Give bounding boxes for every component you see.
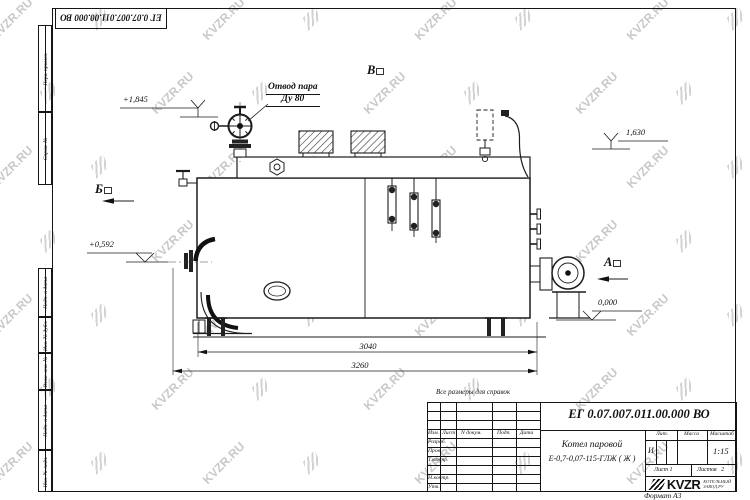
doc-number: ЕГ 0.07.007.011.00.000 ВО — [568, 408, 709, 421]
level-mark-0000: 0,000 — [598, 298, 617, 307]
brand-sub-line1: КОТЕЛЬНЫЙ — [703, 479, 731, 484]
level-mark-1630: 1,630 — [626, 128, 645, 137]
lit-value: И — [648, 447, 654, 455]
margin-label: Взам. инв. № — [44, 347, 50, 397]
scale-value: 1:15 — [713, 447, 729, 456]
tb-col-list: Лист — [442, 431, 455, 437]
kvzr-logo-icon — [648, 479, 666, 490]
lit-label: Лит. — [656, 432, 668, 438]
view-label-b: Б — [95, 183, 112, 196]
brand-sub-line2: ЗАВОД.РУ — [703, 484, 724, 489]
view-letter: А — [604, 255, 612, 269]
margin-label: Справ. № — [44, 124, 50, 174]
dim-3260: 3260 — [352, 361, 369, 370]
tb-col-izm: Изм. — [428, 431, 439, 437]
mass-label: Масса — [684, 432, 699, 438]
view-letter: Б — [95, 182, 103, 196]
tb-row-prov: Пров. — [428, 449, 441, 455]
drawing-sheet: KVZR.RUKVZR.RUKVZR.RUKVZR.RUKVZR.RUKVZR.… — [0, 0, 750, 500]
tb-row-nkontr: Н.контр. — [428, 476, 450, 482]
steam-outlet-callout: Отвод пара Ду 80 — [266, 83, 320, 107]
view-label-a: А — [604, 256, 621, 269]
reference-note: Все размеры для справок — [436, 389, 510, 396]
view-label-v: В — [367, 64, 384, 77]
tb-row-utv: Утв. — [428, 485, 440, 491]
format-label: Формат А3 — [644, 492, 681, 500]
tb-row-tkontr: Т.контр. — [428, 458, 448, 464]
view-letter: В — [367, 63, 375, 77]
sheet-number: Лист 1 — [654, 467, 673, 473]
company-cell: KVZR КОТЕЛЬНЫЙ ЗАВОД.РУ — [645, 476, 737, 492]
margin-label: Подп. и дата — [44, 396, 50, 446]
tb-col-data: Дата — [520, 431, 533, 437]
view-sheet-ref-icon — [376, 68, 384, 75]
level-mark-0592: +0,592 — [89, 240, 114, 249]
product-type: Е-0,7-0,07-115-ГЛЖ ( Ж ) — [549, 455, 636, 463]
view-sheet-ref-icon — [104, 187, 112, 194]
kvzr-brand-sub: КОТЕЛЬНЫЙ ЗАВОД.РУ — [703, 479, 731, 490]
scale-label: Масштаб — [710, 432, 734, 438]
callout-line2: Ду 80 — [266, 95, 320, 107]
tb-row-razrab: Разраб. — [428, 440, 446, 446]
tb-col-ndoc: N докум. — [461, 431, 482, 437]
margin-label: Инв. № подл. — [44, 447, 50, 497]
margin-label: Перв. примен. — [44, 44, 50, 94]
dim-3040: 3040 — [360, 342, 377, 351]
view-sheet-ref-icon — [613, 260, 621, 267]
product-name: Котел паровой — [562, 441, 623, 451]
level-mark-1845: +1,845 — [123, 95, 148, 104]
sheets-total: Листов 2 — [697, 467, 724, 473]
doc-number-top: ЕГ 0.07.007.011.00.000 ВО — [58, 12, 164, 21]
tb-col-podp: Подп. — [497, 431, 511, 437]
kvzr-brand: KVZR — [667, 477, 700, 492]
